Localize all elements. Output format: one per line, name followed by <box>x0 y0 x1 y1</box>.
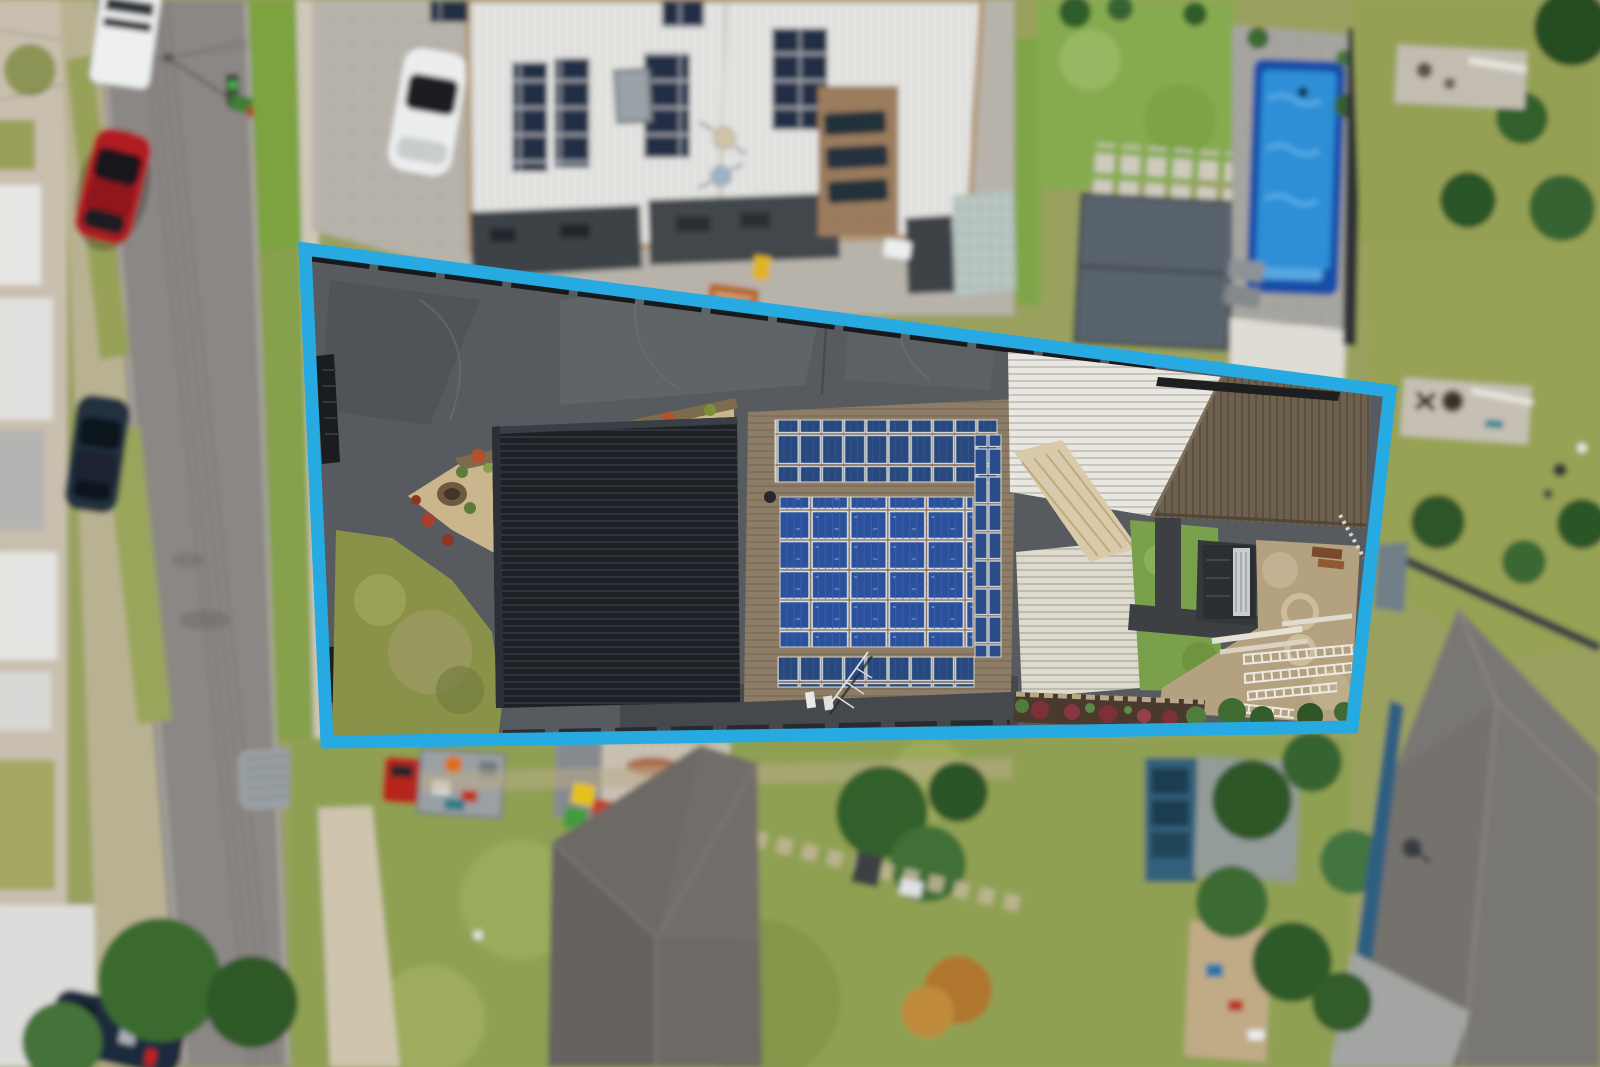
solar-right-column <box>975 435 1001 657</box>
gable-roof-studio <box>1074 194 1236 350</box>
patio-slab-top <box>1395 45 1528 110</box>
solar-center-array <box>780 497 973 647</box>
back-yard <box>1128 515 1364 724</box>
roof-vent <box>764 491 776 503</box>
power-pole <box>163 53 173 63</box>
solar-top-strip <box>775 420 997 482</box>
solar-roof-house <box>744 399 1016 714</box>
firepit-slab <box>1400 378 1534 445</box>
asphalt-path <box>1155 518 1181 612</box>
green-light <box>228 80 238 90</box>
yellow-bin <box>751 255 771 281</box>
glass-conservatory-roof <box>952 190 1016 296</box>
truck-red-cab <box>382 756 421 804</box>
solar-bottom-strip <box>778 657 974 687</box>
swimming-pool <box>1246 58 1346 295</box>
roof-window <box>615 69 652 123</box>
paver-courtyard <box>818 86 898 236</box>
black-garage-roof <box>492 417 740 708</box>
skylight-shed <box>1203 545 1255 619</box>
aerial-photo <box>0 0 1600 1067</box>
right-backyards <box>1352 0 1600 662</box>
